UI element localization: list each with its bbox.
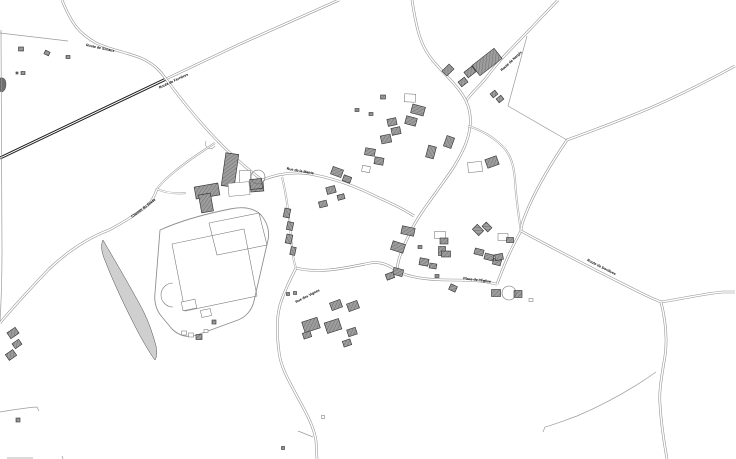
building-filled-23 <box>355 109 359 112</box>
building-filled-2 <box>66 56 70 59</box>
building-filled-0 <box>19 47 24 51</box>
building-filled-56 <box>418 246 422 249</box>
cadastral-map-viewport[interactable]: Route de SceauxRoute de FerrièresRoute d… <box>0 0 736 459</box>
building-filled-81 <box>282 447 285 450</box>
building-outline-85 <box>182 331 187 335</box>
building-outline-88 <box>204 330 208 333</box>
building-filled-84 <box>212 320 216 324</box>
building-outline-80 <box>322 416 325 419</box>
building-filled-87 <box>196 335 202 340</box>
building-filled-53 <box>419 258 429 266</box>
building-filled-22 <box>369 113 373 116</box>
building-filled-21 <box>380 134 391 144</box>
building-filled-16 <box>381 95 386 99</box>
building-filled-52 <box>442 251 451 257</box>
building-outline-27 <box>468 161 483 172</box>
building-filled-3 <box>21 72 25 75</box>
building-filled-54 <box>429 263 437 269</box>
building-filled-20 <box>391 127 401 136</box>
building-outline-30 <box>362 165 371 172</box>
building-filled-78 <box>287 293 290 296</box>
building-filled-19 <box>387 118 397 127</box>
building-filled-37 <box>286 221 294 230</box>
building-filled-67 <box>492 290 501 297</box>
building-outline-45 <box>228 182 250 197</box>
building-outline-69 <box>529 299 533 302</box>
map-canvas[interactable]: Route de SceauxRoute de FerrièresRoute d… <box>0 0 736 459</box>
building-filled-66 <box>495 253 504 260</box>
building-filled-49 <box>440 238 448 244</box>
building-outline-48 <box>435 232 446 239</box>
building-filled-65 <box>507 238 514 243</box>
building-filled-4 <box>16 72 18 74</box>
building-filled-8 <box>16 418 20 422</box>
building-filled-29 <box>374 157 384 165</box>
building-filled-79 <box>294 292 297 295</box>
building-outline-86 <box>189 333 194 337</box>
building-outline-15 <box>404 94 415 103</box>
building-filled-28 <box>364 148 375 157</box>
building-filled-57 <box>435 275 439 278</box>
